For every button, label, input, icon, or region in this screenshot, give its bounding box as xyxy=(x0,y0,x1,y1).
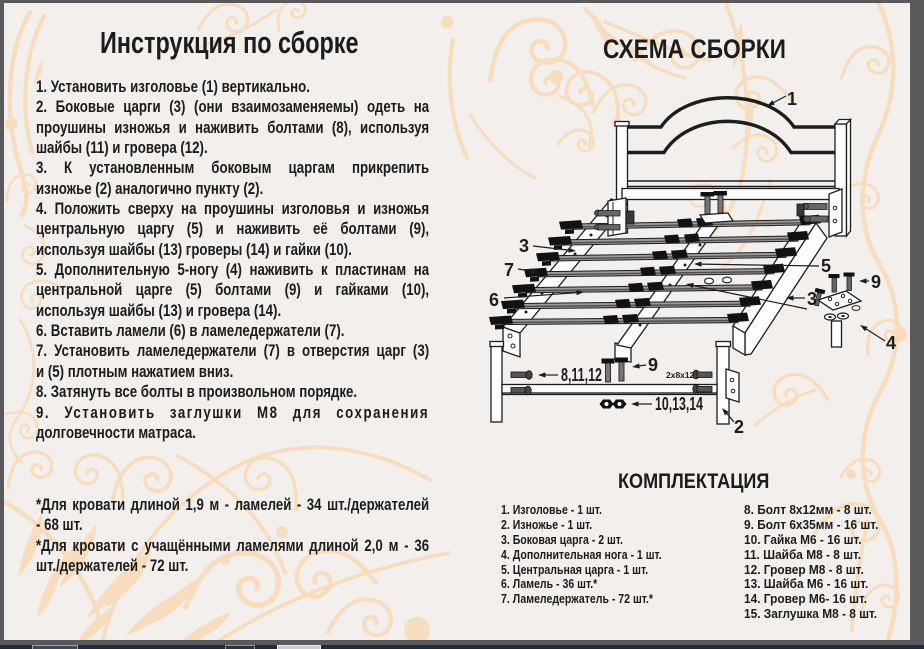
svg-text:4: 4 xyxy=(886,333,896,353)
svg-text:6: 6 xyxy=(489,290,499,310)
svg-text:8,11,12: 8,11,12 xyxy=(561,365,602,385)
svg-text:10,13,14: 10,13,14 xyxy=(655,394,703,414)
svg-text:1: 1 xyxy=(787,89,797,109)
svg-text:2x8x12: 2x8x12 xyxy=(666,370,695,380)
svg-text:9: 9 xyxy=(871,272,881,292)
svg-text:3: 3 xyxy=(807,289,817,309)
svg-text:7: 7 xyxy=(504,260,514,280)
svg-text:5: 5 xyxy=(821,256,831,276)
svg-text:3: 3 xyxy=(519,236,529,256)
svg-text:2: 2 xyxy=(734,417,744,437)
svg-text:9: 9 xyxy=(648,355,658,375)
